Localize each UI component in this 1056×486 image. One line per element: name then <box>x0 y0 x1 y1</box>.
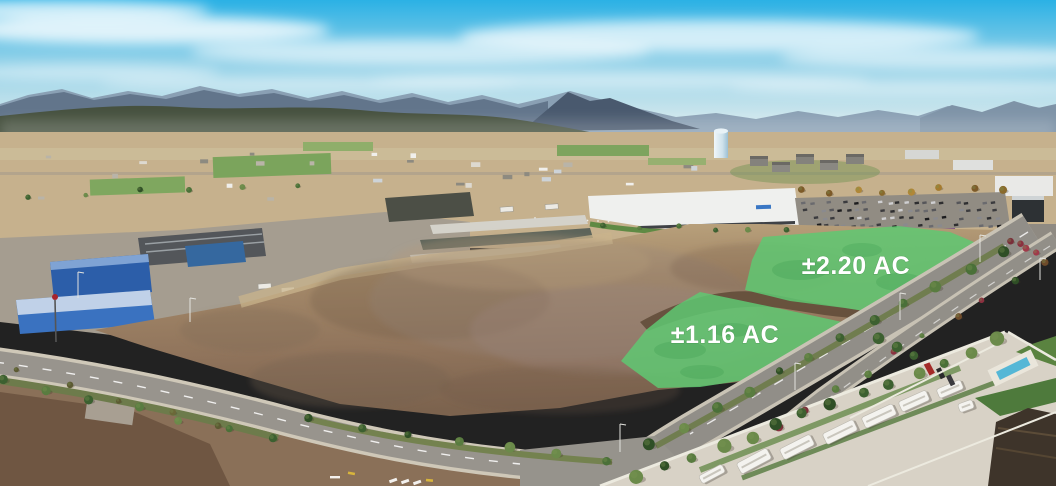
water-tower <box>714 128 728 158</box>
aerial-photo-canvas: ±2.20 AC ±1.16 AC <box>0 0 1056 486</box>
tree <box>955 313 963 320</box>
tree <box>455 437 466 446</box>
tree <box>1012 277 1021 285</box>
aerial-photo: ±2.20 AC ±1.16 AC <box>0 0 1056 486</box>
green-farm-field <box>213 153 332 178</box>
apartment-buildings <box>730 154 880 184</box>
green-farm-field <box>557 145 649 156</box>
truck-trailer <box>500 206 513 212</box>
tree <box>505 442 518 453</box>
truck-trailer <box>545 204 558 210</box>
tree <box>909 351 919 360</box>
parcel-label-2-20: ±2.20 AC <box>802 252 911 280</box>
tree <box>1041 259 1050 266</box>
tree <box>979 298 986 304</box>
tree <box>404 431 412 438</box>
parcel-label-1-16: ±1.16 AC <box>671 321 780 349</box>
